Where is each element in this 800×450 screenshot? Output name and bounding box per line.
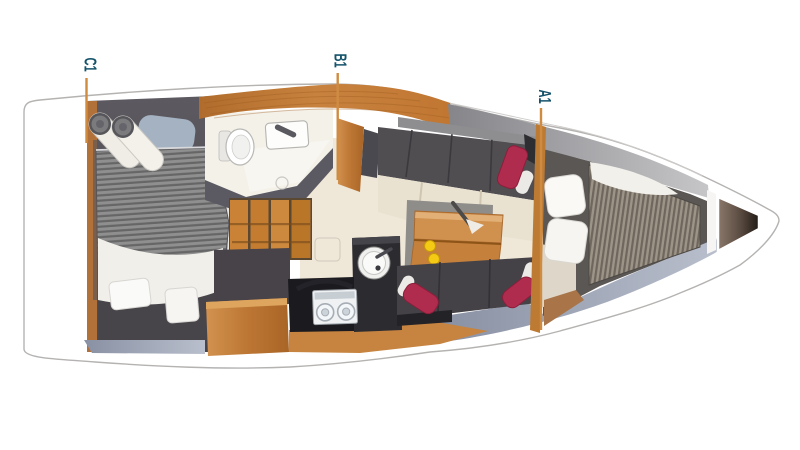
svg-text:A1: A1 [534,90,554,104]
svg-text:B1: B1 [330,54,350,68]
svg-text:C1: C1 [80,58,100,72]
